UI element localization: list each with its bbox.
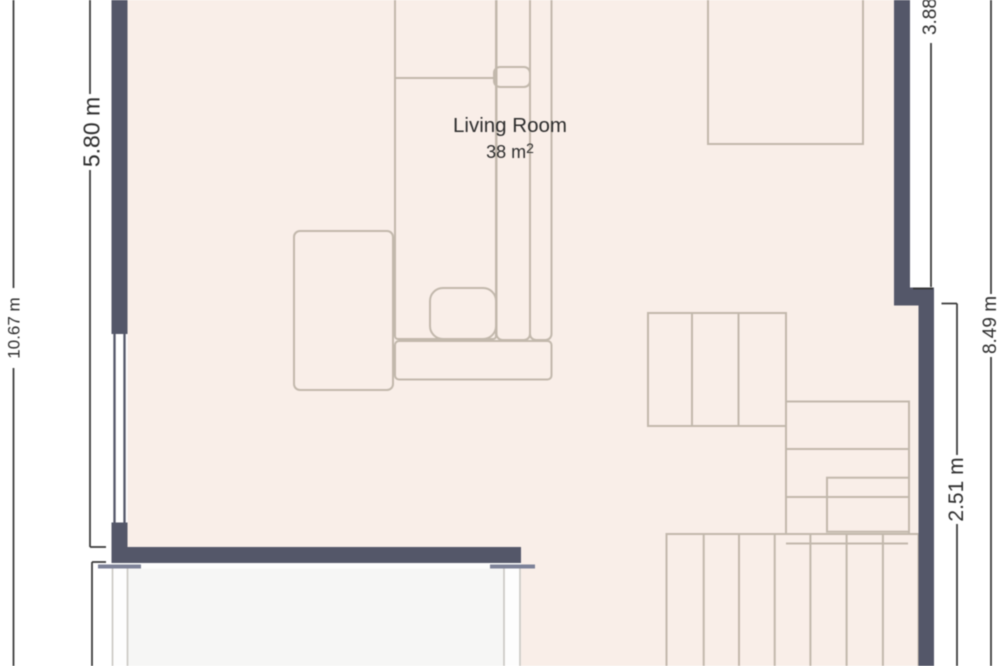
svg-text:8.49 m: 8.49 m bbox=[980, 296, 1000, 354]
svg-text:Living Room: Living Room bbox=[453, 114, 567, 137]
svg-text:3.88 m: 3.88 m bbox=[920, 0, 941, 35]
svg-text:10.67 m: 10.67 m bbox=[5, 297, 24, 358]
svg-text:2.51 m: 2.51 m bbox=[945, 457, 968, 521]
svg-text:5.80 m: 5.80 m bbox=[79, 97, 105, 167]
